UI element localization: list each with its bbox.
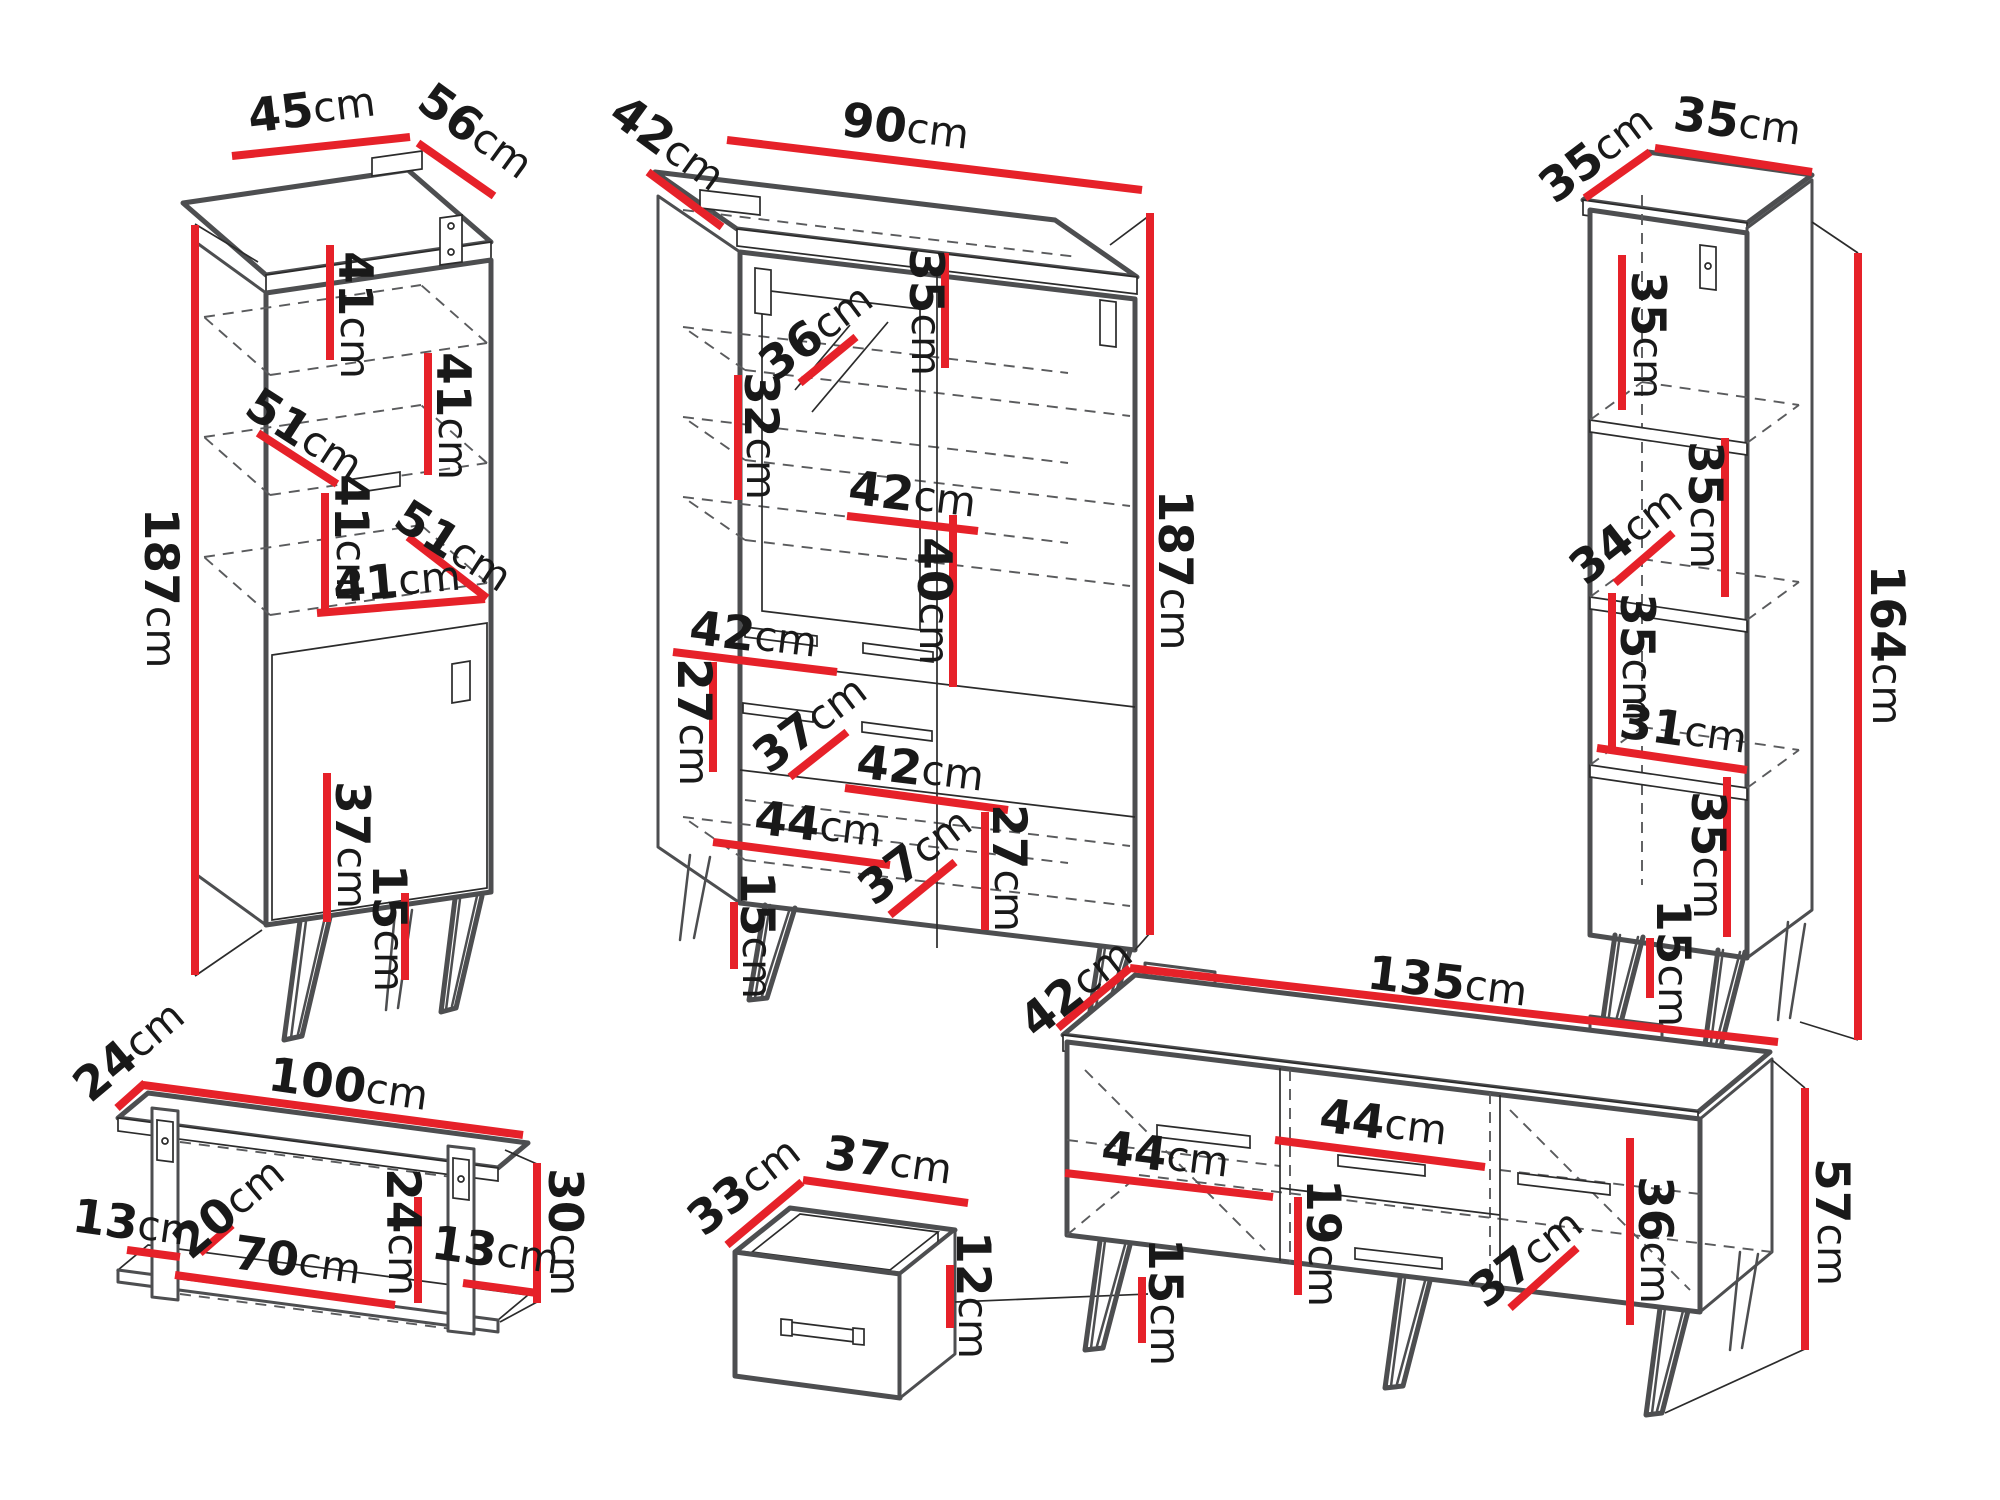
dim-label-p2-right-h: 27cm xyxy=(982,804,1037,932)
dim-label-p4-inner: 24cm xyxy=(376,1168,431,1296)
diagram-canvas: 45cm 56cm 187cm 41cm 41cm 51cm 41cm 51cm… xyxy=(0,0,2000,1500)
dim-label-p2-shelf-top: 35cm xyxy=(899,248,954,376)
p2-left-side-face xyxy=(658,196,740,903)
dim-label-p1-depth: 56cm xyxy=(408,72,544,192)
p1-door-handle xyxy=(452,661,470,703)
piece-display-cabinet: 42cm 90cm 187cm 36cm 35cm 32cm 42cm 40cm… xyxy=(600,84,1203,1043)
dim-label-p1-width: 45cm xyxy=(245,74,379,144)
piece-tall-cabinet: 45cm 56cm 187cm 41cm 41cm 51cm 41cm 51cm… xyxy=(134,72,544,1040)
p5-handle-cap-left xyxy=(781,1319,792,1336)
dim-label-p2-width: 90cm xyxy=(839,92,973,162)
p5-handle-cap-right xyxy=(853,1328,864,1345)
dim-label-p3-height: 164cm xyxy=(1860,565,1915,726)
dim-label-p3-width: 35cm xyxy=(1670,86,1804,158)
dim-label-p2-legs: 15cm xyxy=(730,871,785,999)
dim-label-p2-left-h: 27cm xyxy=(667,658,722,786)
dim-label-p1-shelf2: 41cm xyxy=(426,352,481,480)
p3-wall-rail xyxy=(1700,245,1716,290)
dim-label-p2-glass-h: 32cm xyxy=(734,372,789,500)
dim-label-p3-shelf1: 35cm xyxy=(1621,271,1676,399)
piece-shelf-unit: 35cm 35cm 164cm 35cm 34cm 35cm 35cm 31cm… xyxy=(1529,86,1915,1052)
p4-right-bracket-rail xyxy=(453,1158,469,1200)
furniture-dimension-diagram: 45cm 56cm 187cm 41cm 41cm 51cm 41cm 51cm… xyxy=(0,0,2000,1500)
p1-slab-notch xyxy=(372,151,422,176)
dim-label-p6-drawer: 19cm xyxy=(1296,1179,1351,1307)
p3-right-side-face xyxy=(1747,180,1812,958)
dim-label-p6-height: 57cm xyxy=(1805,1158,1860,1286)
dim-label-p2-inner-h: 40cm xyxy=(907,537,962,665)
dim-label-p3-legs: 15cm xyxy=(1646,899,1701,1027)
dim-label-p1-legs: 15cm xyxy=(362,864,417,992)
piece-wall-shelf: 24cm 100cm 30cm 13cm 20cm 70cm 24cm 13cm xyxy=(62,989,592,1334)
p2-wall-rail-left xyxy=(755,268,771,315)
dim-label-p6-legs: 15cm xyxy=(1138,1238,1193,1366)
dim-label-p6-door: 36cm xyxy=(1628,1176,1683,1304)
p1-left-side-face xyxy=(197,243,266,925)
dim-label-p1-height: 187cm xyxy=(134,508,189,669)
dim-label-p3-shelf2: 35cm xyxy=(1678,441,1733,569)
p4-left-bracket-rail xyxy=(157,1120,173,1162)
dim-label-p2-height: 187cm xyxy=(1148,490,1203,651)
dim-label-p1-shelf1: 41cm xyxy=(328,251,383,379)
dim-label-p5-height: 12cm xyxy=(946,1231,1001,1359)
p2-wall-rail-right xyxy=(1100,300,1116,347)
